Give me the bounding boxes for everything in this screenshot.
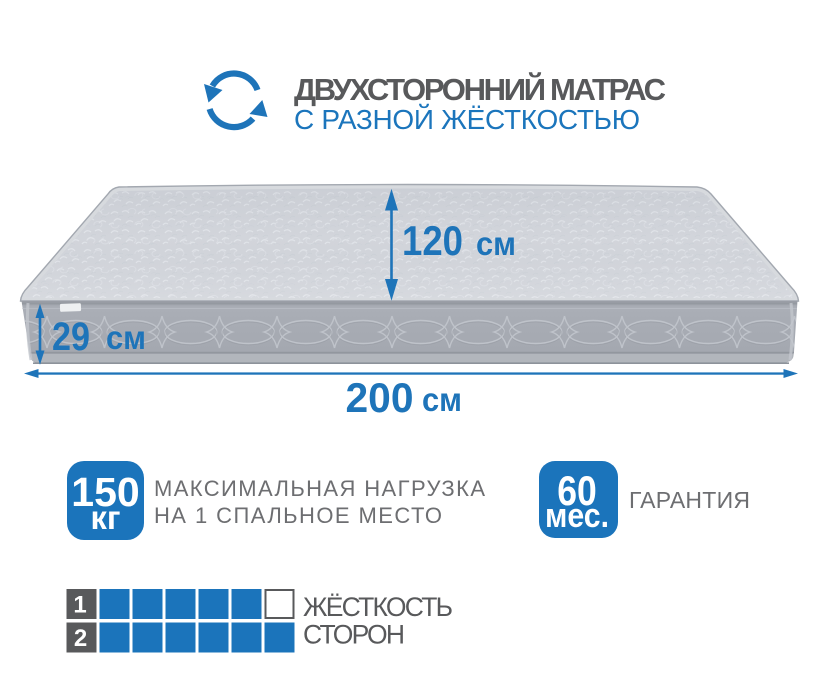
svg-text:120: 120 [402, 217, 463, 264]
svg-text:МАКСИМАЛЬНАЯ НАГРУЗКА: МАКСИМАЛЬНАЯ НАГРУЗКА [154, 476, 485, 501]
svg-text:ДВУХСТОРОННИЙ МАТРАС: ДВУХСТОРОННИЙ МАТРАС [294, 71, 666, 107]
svg-text:200: 200 [346, 374, 414, 421]
svg-text:см: см [422, 381, 462, 418]
svg-text:СТОРОН: СТОРОН [303, 620, 405, 650]
svg-text:ЖЁСТКОСТЬ: ЖЁСТКОСТЬ [303, 592, 453, 622]
svg-text:ГАРАНТИЯ: ГАРАНТИЯ [629, 487, 750, 513]
svg-text:мес.: мес. [545, 497, 609, 535]
svg-text:2: 2 [74, 625, 87, 652]
svg-text:С РАЗНОЙ ЖЁСТКОСТЬЮ: С РАЗНОЙ ЖЁСТКОСТЬЮ [294, 104, 640, 135]
svg-text:см: см [476, 225, 516, 262]
svg-text:см: см [106, 319, 146, 356]
svg-text:29: 29 [52, 315, 90, 359]
svg-text:кг: кг [91, 499, 121, 536]
svg-text:1: 1 [73, 592, 86, 619]
